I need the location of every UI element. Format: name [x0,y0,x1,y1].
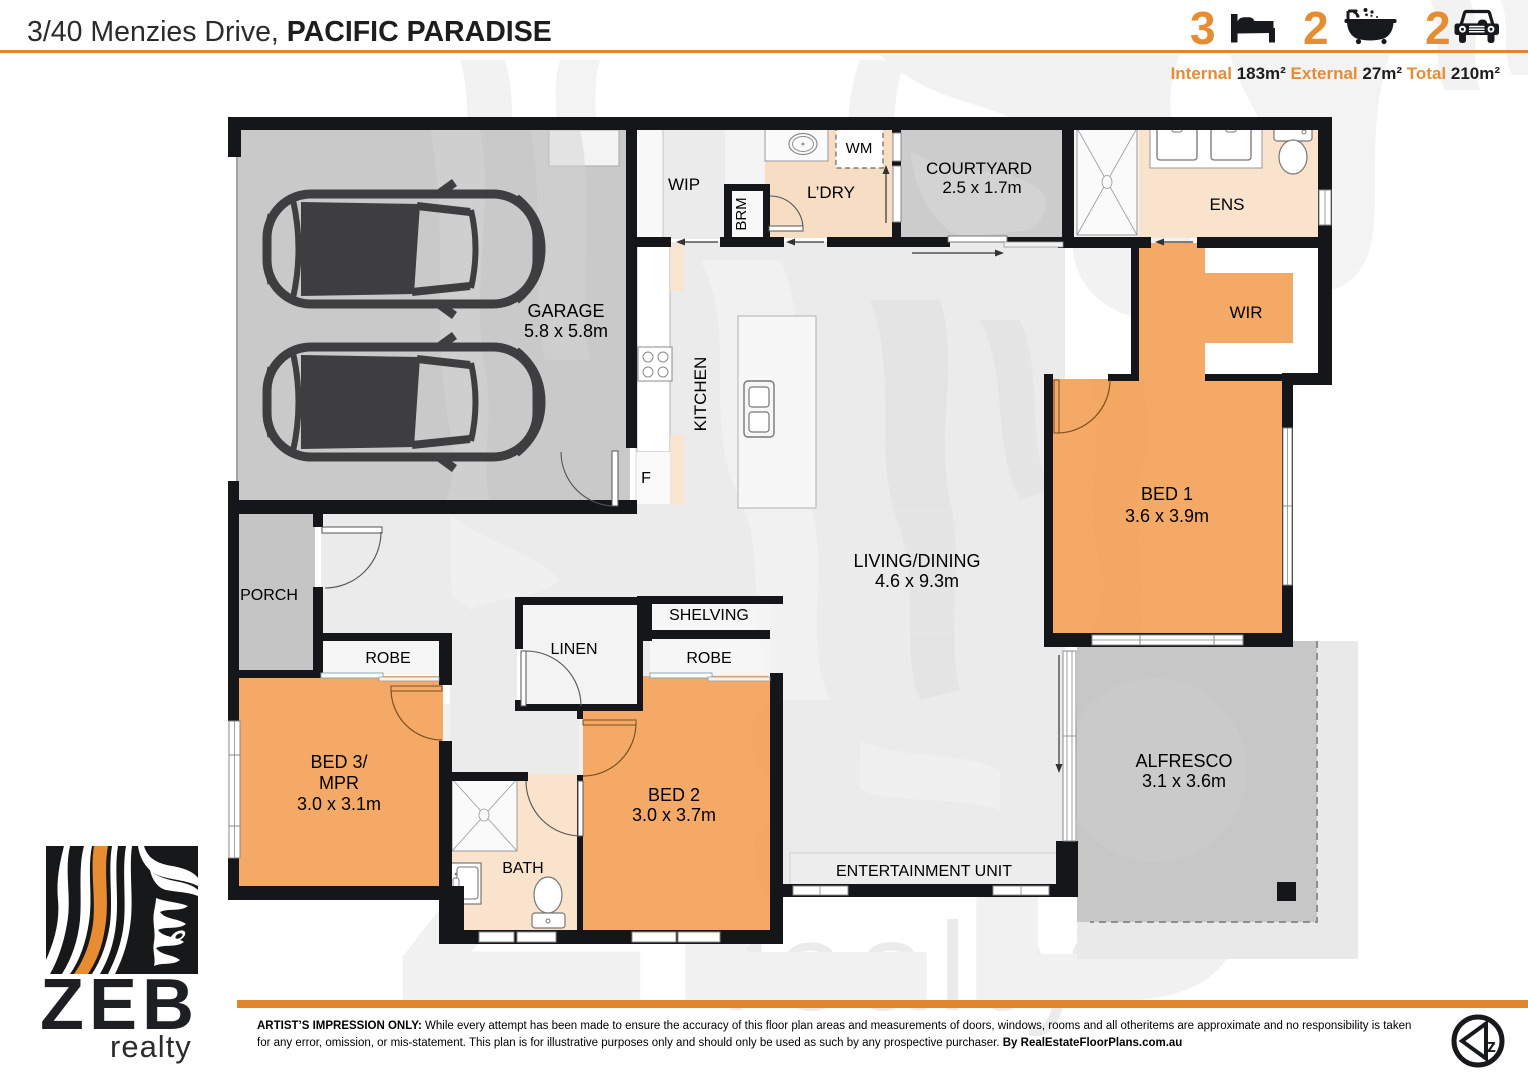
svg-text:KITCHEN: KITCHEN [691,357,710,432]
svg-text:MPR: MPR [319,773,359,793]
svg-text:BRM: BRM [733,197,750,230]
svg-text:ALFRESCO: ALFRESCO [1135,751,1232,771]
svg-text:ROBE: ROBE [365,650,410,667]
svg-text:BED 3/: BED 3/ [310,752,367,772]
svg-text:SHELVING: SHELVING [669,607,749,624]
svg-text:F: F [641,470,651,487]
svg-text:WM: WM [846,140,873,157]
svg-text:BED 2: BED 2 [648,785,700,805]
svg-text:z: z [1487,1036,1496,1056]
svg-text:ROBE: ROBE [686,650,731,667]
svg-text:2: 2 [1425,2,1451,54]
svg-text:4.6 x 9.3m: 4.6 x 9.3m [875,571,959,591]
svg-text:COURTYARD: COURTYARD [926,159,1032,178]
svg-text:BATH: BATH [502,860,543,877]
svg-text:2: 2 [1303,2,1329,54]
svg-text:ENTERTAINMENT UNIT: ENTERTAINMENT UNIT [836,863,1012,880]
svg-text:ENS: ENS [1210,195,1245,214]
svg-text:3.1 x 3.6m: 3.1 x 3.6m [1142,771,1226,791]
svg-text:realty: realty [110,1029,192,1064]
svg-text:3: 3 [1190,2,1216,54]
svg-text:L’DRY: L’DRY [807,183,855,202]
svg-text:WIP: WIP [668,175,700,194]
svg-text:LIVING/DINING: LIVING/DINING [853,551,980,571]
svg-text:LINEN: LINEN [550,641,597,658]
svg-text:for any error, omission, or mi: for any error, omission, or mis-statemen… [257,1037,1182,1049]
svg-text:3.6 x 3.9m: 3.6 x 3.9m [1125,506,1209,526]
svg-text:3.0 x 3.1m: 3.0 x 3.1m [297,794,381,814]
svg-text:3/40 Menzies Drive, PACIFIC PA: 3/40 Menzies Drive, PACIFIC PARADISE [27,16,552,48]
svg-text:2.5 x 1.7m: 2.5 x 1.7m [942,178,1021,197]
svg-text:PORCH: PORCH [240,587,298,604]
svg-text:GARAGE: GARAGE [527,301,604,321]
svg-text:3.0 x 3.7m: 3.0 x 3.7m [632,805,716,825]
svg-text:5.8 x 5.8m: 5.8 x 5.8m [524,321,608,341]
svg-text:BED 1: BED 1 [1141,484,1193,504]
svg-text:WIR: WIR [1229,303,1262,322]
svg-text:Internal 183m² External 27m²: Internal 183m² External 27m² Total 210m² [1171,64,1501,83]
svg-text:ARTIST’S IMPRESSION ONLY: Whil: ARTIST’S IMPRESSION ONLY: While every at… [257,1020,1411,1032]
